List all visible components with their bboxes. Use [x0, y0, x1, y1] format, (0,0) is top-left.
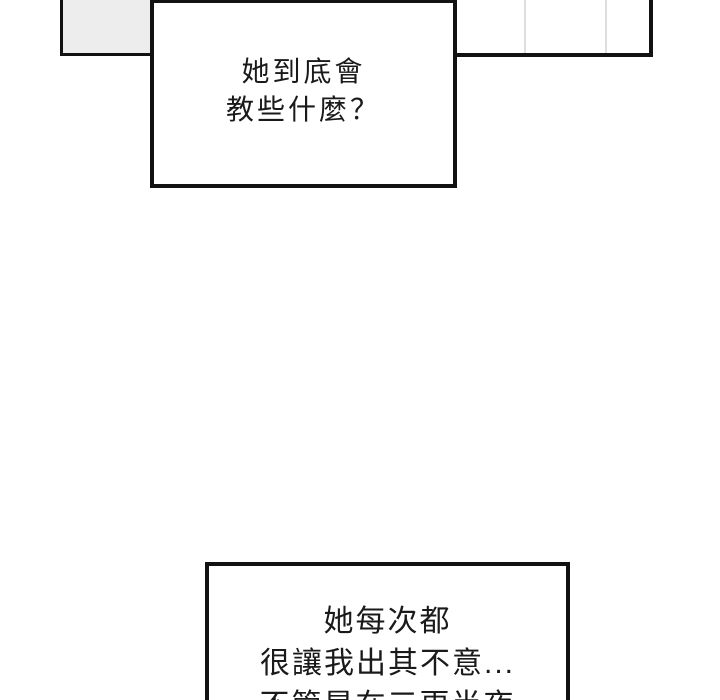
top-right-panel-fragment: [457, 0, 653, 57]
speech-text-line: 她到底會: [154, 53, 453, 91]
panel-frame-line: [605, 0, 607, 53]
speech-text-line: 教些什麼？: [154, 91, 453, 129]
top-left-panel-fragment: [60, 0, 153, 56]
speech-text-line: 她每次都: [209, 601, 566, 643]
panel-frame-line: [524, 0, 526, 53]
speech-text-line: 很讓我出其不意...: [209, 643, 566, 685]
speech-bubble-bottom: 她每次都 很讓我出其不意... 不管是在三更半夜: [205, 562, 570, 700]
speech-bubble-top: 她到底會 教些什麼？: [150, 0, 457, 188]
comic-page: 她到底會 教些什麼？ 她每次都 很讓我出其不意... 不管是在三更半夜: [0, 0, 720, 700]
speech-text-line: 不管是在三更半夜: [209, 685, 566, 700]
